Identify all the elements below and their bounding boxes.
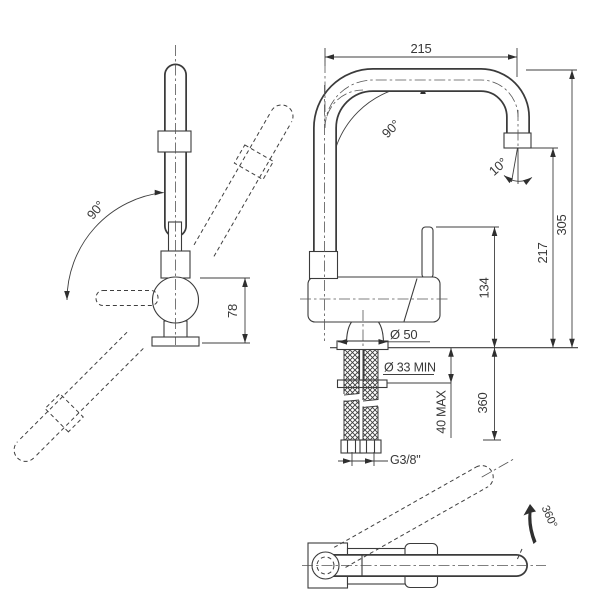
hole-min-label: Ø 33 MIN	[384, 361, 436, 375]
dimension-outlet-angle: 10°	[486, 148, 534, 185]
rotation-indicator: 360°	[517, 504, 559, 560]
side-elevation-view: 215 305 217 134	[300, 41, 578, 467]
dimension-hole-min: Ø 33 MIN	[383, 361, 436, 375]
bend-angle-label: 90°	[379, 117, 403, 141]
ghost-spout-upper	[189, 98, 301, 259]
spout-reach-label: 215	[410, 41, 431, 56]
dimension-counter-thickness: 40 MAX	[435, 348, 454, 438]
dimension-swivel-angle: 90°	[64, 190, 164, 300]
top-rotation-view: 360°	[302, 448, 559, 588]
outlet-height-label: 217	[535, 242, 550, 263]
spout-nut	[310, 252, 338, 279]
dimension-thread: G3/8"	[338, 452, 421, 467]
counter-thickness-label: 40 MAX	[435, 390, 449, 434]
dimension-body-height: 78	[200, 278, 250, 343]
mixer-body	[308, 277, 440, 322]
hose-nut-right	[360, 440, 381, 453]
thread-size-label: G3/8"	[390, 453, 421, 467]
handle-height-label: 134	[477, 277, 492, 298]
ghost-handle-open	[96, 291, 158, 306]
dimension-total-height: 305	[526, 70, 577, 348]
spout-rotation-label: 360°	[539, 504, 559, 530]
base-diameter-label: Ø 50	[390, 327, 417, 342]
technical-drawing-canvas: 215 305 217 134	[0, 0, 600, 600]
supply-hose-right	[363, 349, 378, 440]
faucet-drawing-svg: 215 305 217 134	[0, 0, 600, 600]
hose-depth-label: 360	[475, 392, 490, 413]
dimension-hose-depth: 360	[475, 348, 501, 440]
rotation-arrow	[524, 504, 537, 544]
dimension-outlet-height: 217	[531, 148, 558, 348]
front-swivel-view: 90° 78	[7, 45, 301, 470]
outlet-angle-label: 10°	[486, 155, 510, 179]
hose-nut-left	[341, 440, 362, 453]
spout-stem	[169, 222, 182, 252]
total-height-label: 305	[554, 214, 569, 235]
spout-collar	[158, 131, 191, 152]
aerator-nozzle	[504, 133, 531, 148]
handle-lever	[422, 227, 433, 278]
ghost-spout-lower	[7, 329, 148, 470]
body-height-label: 78	[225, 304, 240, 318]
dimension-handle-height: 134	[436, 227, 499, 348]
